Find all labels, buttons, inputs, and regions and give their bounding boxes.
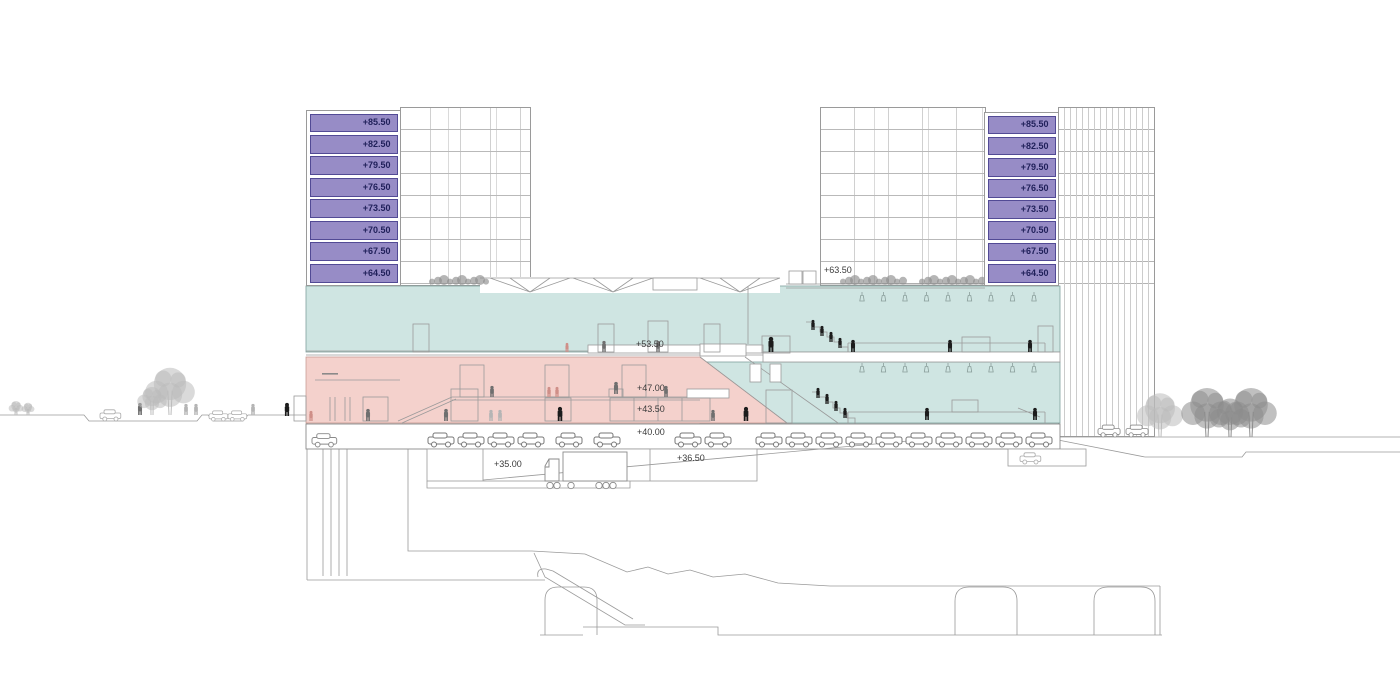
escalator-truss (750, 364, 761, 382)
right-tower-level-4: +73.50 (988, 200, 1056, 219)
person-figure (194, 404, 198, 415)
right-tower-level-stack: +85.50+82.50+79.50+76.50+73.50+70.50+67.… (984, 112, 1059, 286)
street-car-icon (1126, 425, 1148, 437)
right-tower-level-6: +67.50 (988, 243, 1056, 262)
right-tower-level-5: +70.50 (988, 221, 1056, 240)
person-figure (184, 404, 188, 415)
left-tower-level-4: +73.50 (310, 199, 398, 218)
left-tower-level-0: +85.50 (310, 114, 398, 133)
micro-annotation (322, 373, 338, 375)
door-frame (294, 396, 306, 421)
shrub-row (840, 275, 907, 285)
level-elevation-text: +79.50 (1021, 163, 1049, 172)
street-ground-left (0, 415, 306, 421)
left-tower-level-2: +79.50 (310, 156, 398, 175)
right-tower-level-2: +79.50 (988, 158, 1056, 177)
left-tower-level-6: +67.50 (310, 242, 398, 261)
level-elevation-text: +73.50 (363, 204, 391, 213)
level-elevation-text: +70.50 (1021, 226, 1049, 235)
street-car-icon (100, 410, 121, 421)
person-figure (285, 403, 289, 416)
level-elevation-text: +76.50 (363, 183, 391, 192)
rooftop-unit (803, 271, 816, 284)
tree-icon (9, 401, 24, 415)
street-car-icon (228, 411, 247, 421)
person-figure (251, 404, 255, 415)
metro-tunnel-portal (1094, 587, 1155, 635)
counter-desk (687, 389, 729, 398)
right-tower-level-1: +82.50 (988, 137, 1056, 156)
underground-escalator (534, 553, 645, 625)
left-tower-level-3: +76.50 (310, 178, 398, 197)
shrub-row (429, 275, 489, 285)
tree-icon (22, 403, 35, 415)
rooftop-unit (789, 271, 802, 284)
level-elevation-text: +85.50 (1021, 120, 1049, 129)
metro-tunnel-portal (955, 587, 1017, 635)
street-car-icon (1098, 425, 1120, 437)
level-elevation-text: +85.50 (363, 118, 391, 127)
building-volumes (306, 286, 1060, 423)
metro-tunnel-portal (545, 587, 597, 635)
section-linework (0, 0, 1400, 700)
level-elevation-text: +67.50 (1021, 247, 1049, 256)
level-elevation-text: +67.50 (363, 247, 391, 256)
left-tower-level-stack: +85.50+82.50+79.50+76.50+73.50+70.50+67.… (306, 110, 401, 286)
right-tower-level-0: +85.50 (988, 116, 1056, 135)
left-tower-level-7: +64.50 (310, 264, 398, 283)
street-car-icon (209, 411, 228, 421)
left-tower-level-1: +82.50 (310, 135, 398, 154)
shrub-row (919, 275, 986, 285)
level-elevation-text: +64.50 (363, 269, 391, 278)
level-elevation-text: +82.50 (363, 140, 391, 149)
right-floor-slab (763, 352, 1060, 362)
right-tower-level-3: +76.50 (988, 179, 1056, 198)
left-tower-level-5: +70.50 (310, 221, 398, 240)
street-ground-right (1057, 437, 1400, 457)
level-elevation-text: +64.50 (1021, 269, 1049, 278)
right-tower-level-7: +64.50 (988, 264, 1056, 283)
level-elevation-text: +76.50 (1021, 184, 1049, 193)
escalator-truss (770, 364, 781, 382)
level-elevation-text: +82.50 (1021, 142, 1049, 151)
hall-roof-trusses (480, 277, 780, 293)
architectural-section-drawing: +85.50+82.50+79.50+76.50+73.50+70.50+67.… (0, 0, 1400, 700)
level-elevation-text: +79.50 (363, 161, 391, 170)
level-elevation-text: +70.50 (363, 226, 391, 235)
escalator-landing (700, 344, 746, 356)
level-elevation-text: +73.50 (1021, 205, 1049, 214)
